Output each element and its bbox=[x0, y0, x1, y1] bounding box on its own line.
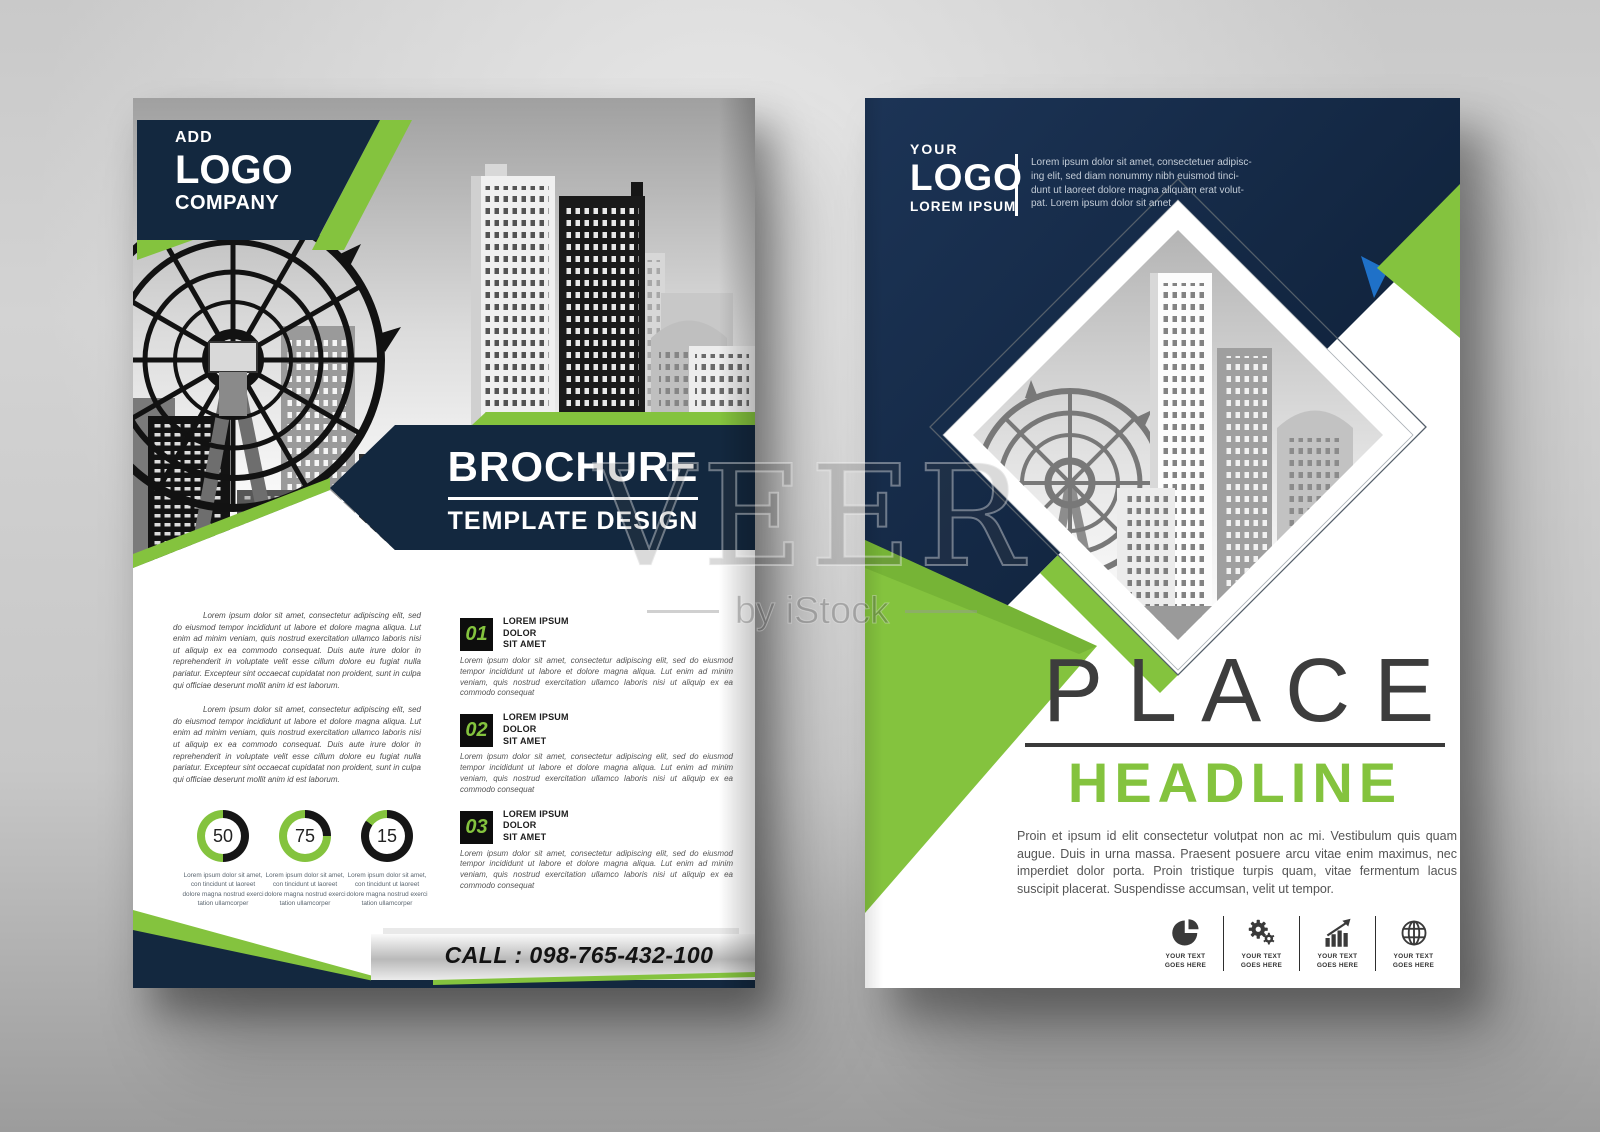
gears-icon bbox=[1247, 918, 1277, 948]
feature-label: YOUR TEXT GOES HERE bbox=[1317, 953, 1358, 971]
company-logo: YOUR LOGO LOREM IPSUM bbox=[910, 142, 1023, 214]
donut-value: 15 bbox=[369, 818, 405, 854]
intro-line: Lorem ipsum dolor sit amet, consectetuer… bbox=[1031, 156, 1255, 170]
donut-chart-75: 75 bbox=[279, 810, 331, 862]
item-header: 02 LOREM IPSUM DOLOR SIT AMET bbox=[460, 712, 733, 747]
feature-row: YOUR TEXT GOES HERE bbox=[1148, 916, 1451, 971]
donut-chart-15: 15 bbox=[361, 810, 413, 862]
item-number-badge: 03 bbox=[460, 811, 493, 844]
logo-line-3: COMPANY bbox=[175, 193, 293, 213]
headline-divider bbox=[1025, 743, 1445, 747]
list-item: 03 LOREM IPSUM DOLOR SIT AMET Lorem ipsu… bbox=[460, 809, 733, 892]
item-heading-line: DOLOR bbox=[503, 820, 569, 832]
call-phone-ribbon: CALL : 098-765-432-100 bbox=[403, 942, 755, 969]
item-heading-line: SIT AMET bbox=[503, 736, 569, 748]
donut-value: 75 bbox=[287, 818, 323, 854]
brochure-front-page: ADD LOGO COMPANY BROCHURE TEMPLATE DESIG… bbox=[133, 98, 755, 988]
stock-preview-canvas: { "colors": { "green": "#84c33e", "navy"… bbox=[0, 0, 1600, 1132]
feature-label-line: GOES HERE bbox=[1317, 962, 1358, 971]
item-number-badge: 01 bbox=[460, 618, 493, 651]
numbered-items: 01 LOREM IPSUM DOLOR SIT AMET Lorem ipsu… bbox=[460, 616, 733, 905]
list-item: 01 LOREM IPSUM DOLOR SIT AMET Lorem ipsu… bbox=[460, 616, 733, 699]
feature-label-line: YOUR TEXT bbox=[1317, 953, 1358, 962]
headline-bottom: HEADLINE bbox=[1025, 755, 1445, 811]
feature-label-line: GOES HERE bbox=[1165, 962, 1206, 971]
item-body: Lorem ipsum dolor sit amet, consectetur … bbox=[460, 849, 733, 892]
item-header: 03 LOREM IPSUM DOLOR SIT AMET bbox=[460, 809, 733, 844]
item-number-badge: 02 bbox=[460, 714, 493, 747]
body-paragraph: Proin et ipsum id elit consectetur volut… bbox=[1017, 828, 1457, 898]
item-heading-line: LOREM IPSUM bbox=[503, 809, 569, 821]
item-body: Lorem ipsum dolor sit amet, consectetur … bbox=[460, 752, 733, 795]
item-heading-line: LOREM IPSUM bbox=[503, 616, 569, 628]
item-heading-line: DOLOR bbox=[503, 724, 569, 736]
company-logo: ADD LOGO COMPANY bbox=[175, 130, 293, 213]
feature-cell: YOUR TEXT GOES HERE bbox=[1375, 916, 1451, 971]
feature-label-line: YOUR TEXT bbox=[1241, 953, 1282, 962]
growth-chart-icon bbox=[1323, 918, 1353, 948]
intro-paragraph: Lorem ipsum dolor sit amet, consectetur … bbox=[173, 610, 421, 691]
intro-paragraphs: Lorem ipsum dolor sit amet, consectetur … bbox=[173, 610, 421, 798]
item-heading: LOREM IPSUM DOLOR SIT AMET bbox=[503, 712, 569, 747]
item-heading-line: DOLOR bbox=[503, 628, 569, 640]
logo-line-1: YOUR bbox=[910, 142, 1023, 156]
headline-top: PLACE bbox=[1025, 646, 1445, 736]
item-heading: LOREM IPSUM DOLOR SIT AMET bbox=[503, 616, 569, 651]
brochure-back-page: YOUR LOGO LOREM IPSUM Lorem ipsum dolor … bbox=[865, 98, 1460, 988]
header-intro-text: Lorem ipsum dolor sit amet, consectetuer… bbox=[1031, 156, 1255, 211]
feature-label-line: YOUR TEXT bbox=[1165, 953, 1206, 962]
brochure-title: BROCHURE bbox=[448, 446, 699, 500]
feature-cell: YOUR TEXT GOES HERE bbox=[1223, 916, 1299, 971]
logo-line-2: LOGO bbox=[175, 150, 293, 190]
item-heading-line: SIT AMET bbox=[503, 832, 569, 844]
item-heading: LOREM IPSUM DOLOR SIT AMET bbox=[503, 809, 569, 844]
donut-value: 50 bbox=[205, 818, 241, 854]
logo-line-2: LOGO bbox=[910, 159, 1023, 196]
intro-paragraph: Lorem ipsum dolor sit amet, consectetur … bbox=[173, 704, 421, 785]
intro-line: ing elit, sed diam nonummy nibh euismod … bbox=[1031, 170, 1255, 184]
intro-line: dunt ut laoreet dolore magna aliquam era… bbox=[1031, 184, 1255, 198]
feature-cell: YOUR TEXT GOES HERE bbox=[1148, 916, 1223, 971]
feature-label-line: GOES HERE bbox=[1393, 962, 1434, 971]
item-heading-line: SIT AMET bbox=[503, 639, 569, 651]
logo-line-1: ADD bbox=[175, 130, 293, 146]
list-item: 02 LOREM IPSUM DOLOR SIT AMET Lorem ipsu… bbox=[460, 712, 733, 795]
feature-label-line: GOES HERE bbox=[1241, 962, 1282, 971]
brochure-subtitle: TEMPLATE DESIGN bbox=[448, 509, 699, 534]
logo-divider-bar bbox=[1015, 154, 1018, 216]
pie-chart-icon bbox=[1171, 918, 1201, 948]
globe-icon bbox=[1399, 918, 1429, 948]
headline-block: PLACE HEADLINE bbox=[1025, 646, 1445, 811]
logo-line-3: LOREM IPSUM bbox=[910, 200, 1023, 214]
footer-shapes bbox=[133, 893, 755, 988]
feature-label: YOUR TEXT GOES HERE bbox=[1165, 953, 1206, 971]
item-heading-line: LOREM IPSUM bbox=[503, 712, 569, 724]
feature-cell: YOUR TEXT GOES HERE bbox=[1299, 916, 1375, 971]
item-body: Lorem ipsum dolor sit amet, consectetur … bbox=[460, 656, 733, 699]
feature-label: YOUR TEXT GOES HERE bbox=[1393, 953, 1434, 971]
feature-label-line: YOUR TEXT bbox=[1393, 953, 1434, 962]
item-header: 01 LOREM IPSUM DOLOR SIT AMET bbox=[460, 616, 733, 651]
intro-line: pat. Lorem ipsum dolor sit amet bbox=[1031, 197, 1255, 211]
title-banner: BROCHURE TEMPLATE DESIGN bbox=[395, 434, 751, 546]
donut-chart-50: 50 bbox=[197, 810, 249, 862]
feature-label: YOUR TEXT GOES HERE bbox=[1241, 953, 1282, 971]
